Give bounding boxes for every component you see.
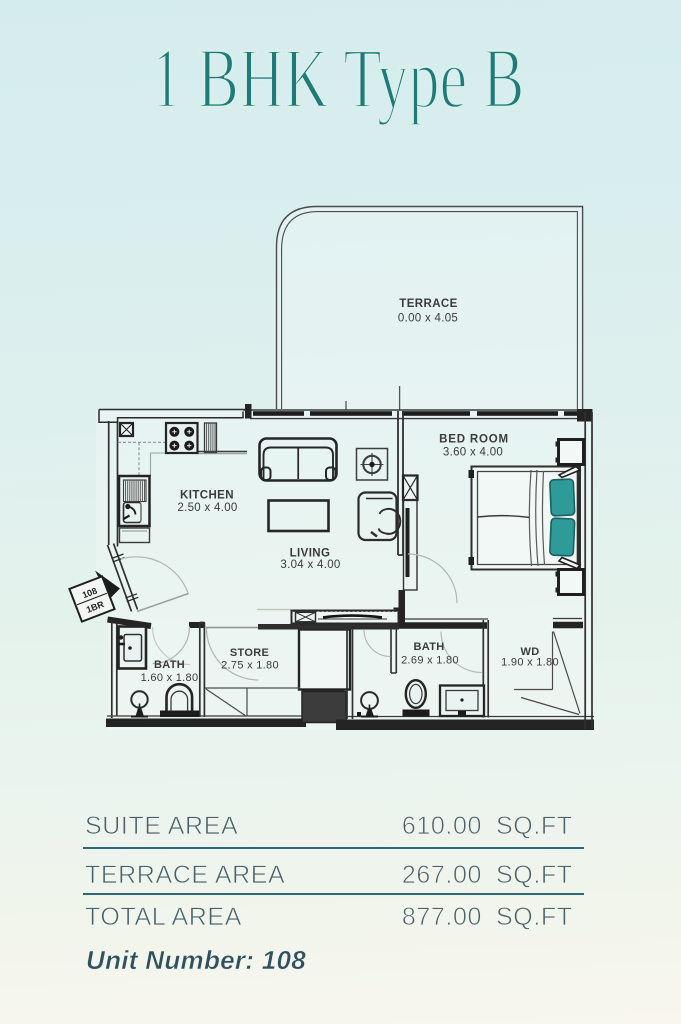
svg-text:2.50 x 4.00: 2.50 x 4.00 [177, 502, 237, 514]
svg-text:STORE: STORE [230, 647, 269, 659]
svg-text:BATH: BATH [414, 641, 445, 653]
svg-text:BED ROOM: BED ROOM [439, 434, 509, 446]
svg-text:2.75 x 1.80: 2.75 x 1.80 [221, 660, 279, 672]
svg-text:LIVING: LIVING [290, 548, 331, 560]
svg-text:2.69 x 1.80: 2.69 x 1.80 [401, 655, 459, 667]
svg-text:1.90 x 1.80: 1.90 x 1.80 [501, 657, 559, 669]
svg-text:3.04 x 4.00: 3.04 x 4.00 [280, 559, 340, 571]
svg-text:3.60 x 4.00: 3.60 x 4.00 [443, 447, 503, 459]
svg-text:KITCHEN: KITCHEN [180, 490, 234, 502]
svg-text:0.00 x 4.05: 0.00 x 4.05 [398, 312, 458, 324]
svg-text:1.60 x 1.80: 1.60 x 1.80 [141, 672, 199, 684]
svg-text:BATH: BATH [154, 659, 185, 671]
svg-text:TERRACE: TERRACE [399, 298, 457, 310]
